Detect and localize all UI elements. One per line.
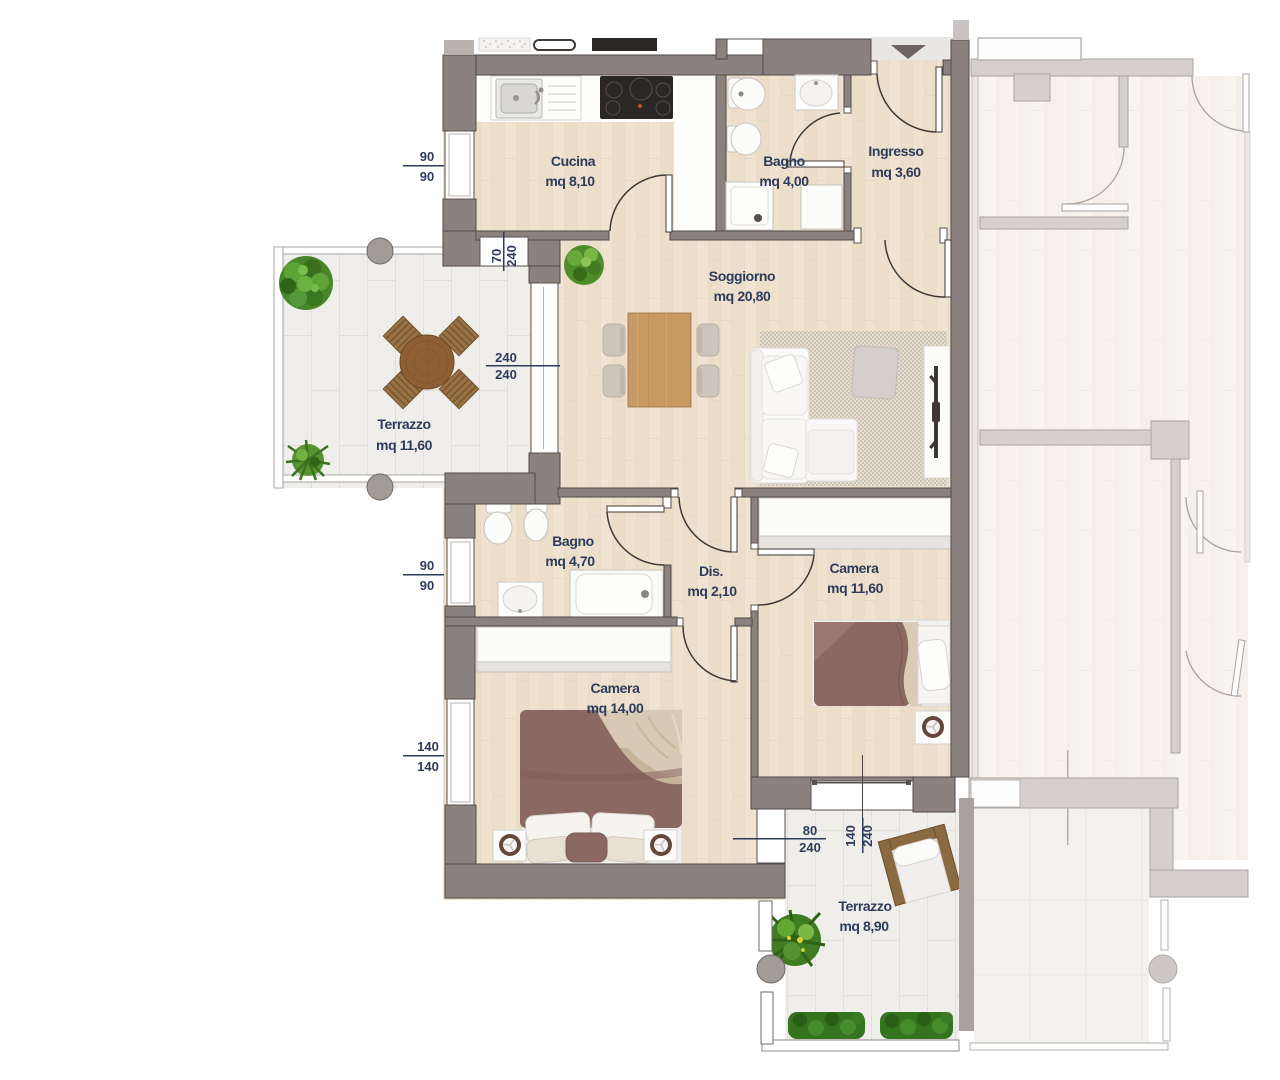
svg-text:90: 90 — [420, 558, 434, 573]
svg-text:mq 11,60: mq 11,60 — [827, 580, 884, 596]
svg-text:240: 240 — [504, 245, 519, 267]
svg-text:90: 90 — [420, 169, 434, 184]
svg-text:90: 90 — [420, 149, 434, 164]
svg-text:Camera: Camera — [591, 680, 641, 696]
svg-text:mq 20,80: mq 20,80 — [714, 288, 771, 304]
svg-text:Camera: Camera — [830, 560, 880, 576]
svg-text:Soggiorno: Soggiorno — [709, 268, 775, 284]
svg-text:240: 240 — [495, 367, 517, 382]
svg-text:Terrazzo: Terrazzo — [838, 898, 891, 914]
svg-text:mq 3,60: mq 3,60 — [871, 164, 921, 180]
svg-text:240: 240 — [495, 350, 517, 365]
svg-text:240: 240 — [860, 825, 875, 847]
svg-text:70: 70 — [489, 249, 504, 263]
svg-text:Ingresso: Ingresso — [868, 143, 923, 159]
svg-text:mq 4,00: mq 4,00 — [759, 173, 809, 189]
svg-text:mq 11,60: mq 11,60 — [376, 437, 433, 453]
svg-text:Cucina: Cucina — [551, 153, 596, 169]
svg-text:Bagno: Bagno — [552, 533, 594, 549]
svg-text:Bagno: Bagno — [763, 153, 805, 169]
svg-text:mq 2,10: mq 2,10 — [687, 583, 737, 599]
svg-text:140: 140 — [417, 759, 439, 774]
svg-text:mq 8,10: mq 8,10 — [545, 173, 595, 189]
svg-text:140: 140 — [843, 825, 858, 847]
svg-text:mq 8,90: mq 8,90 — [839, 918, 889, 934]
svg-text:90: 90 — [420, 578, 434, 593]
svg-text:mq 14,00: mq 14,00 — [587, 700, 644, 716]
svg-text:mq 4,70: mq 4,70 — [545, 553, 595, 569]
svg-text:Dis.: Dis. — [699, 563, 723, 579]
svg-text:240: 240 — [799, 840, 821, 855]
svg-text:140: 140 — [417, 739, 439, 754]
svg-text:80: 80 — [803, 823, 817, 838]
svg-text:Terrazzo: Terrazzo — [377, 416, 430, 432]
